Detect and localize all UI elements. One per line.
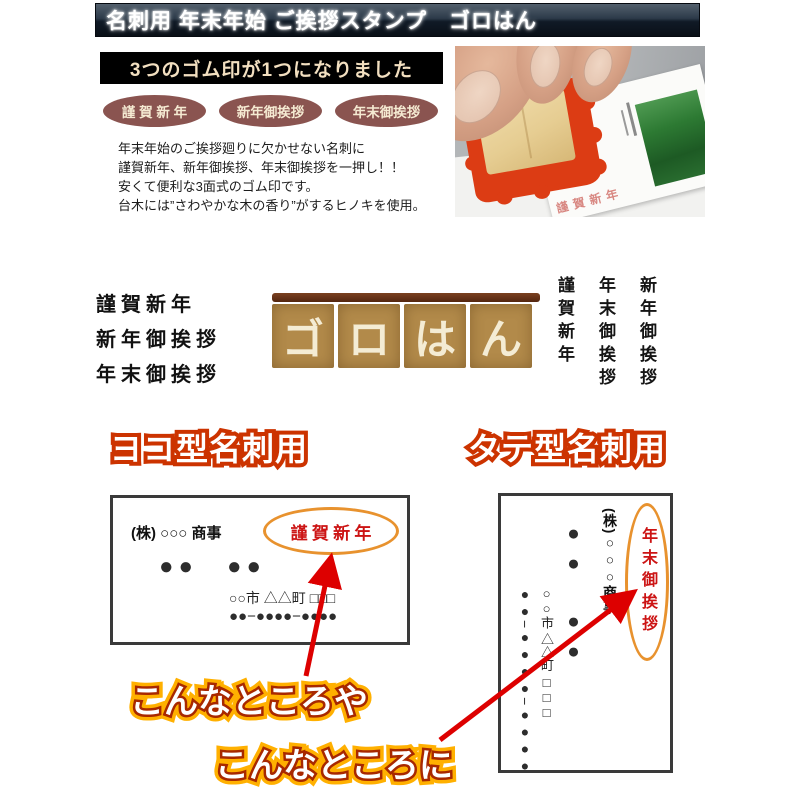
stamp-impressions-horizontal: 謹 賀 新 年 新 年 御 挨 拶 年 末 御 挨 拶 bbox=[96, 288, 216, 393]
impression-column: 新年御挨拶 bbox=[634, 276, 659, 391]
card-company-name: (株) ○○○ 商事 bbox=[131, 522, 222, 543]
badge-label: 年末御挨拶 bbox=[353, 101, 421, 121]
description-line: 安くて便利な3面式のゴム印です。 bbox=[118, 177, 463, 196]
greeting-badges: 謹 賀 新 年 新年御挨拶 年末御挨拶 bbox=[103, 95, 438, 127]
card-person-name-dots: ●● ●● bbox=[558, 522, 588, 670]
impression-line: 新 年 御 挨 拶 bbox=[96, 323, 216, 358]
badge-kinga-shinnen: 謹 賀 新 年 bbox=[103, 95, 206, 127]
heading-text: ヨコ型名刺用 bbox=[110, 424, 308, 470]
stamped-greeting: 謹 賀 新 年 bbox=[291, 519, 372, 544]
note-konna-tokoro-ya: こんなところや こんなところや こんなところや bbox=[130, 674, 368, 723]
badge-label: 謹 賀 新 年 bbox=[122, 101, 187, 121]
intro-banner: 3つのゴム印が1つになりました bbox=[100, 52, 443, 84]
note-text: こんなところに bbox=[215, 738, 453, 787]
goro-han-logo: ゴ ロ は ん bbox=[272, 293, 540, 368]
noren-panel: ロ bbox=[338, 304, 400, 368]
wood-grain bbox=[520, 102, 532, 159]
tate-section-heading: タテ型名刺用 タテ型名刺用 bbox=[468, 424, 666, 470]
tate-business-card: 年末御挨拶 (株)○○○商事 ●● ●● ○○市 △△町 □□□ ●●−●●●●… bbox=[498, 493, 673, 773]
badge-label: 新年御挨拶 bbox=[237, 101, 305, 121]
finger-nail bbox=[579, 46, 618, 91]
finger-nail bbox=[527, 46, 563, 90]
impression-column: 年末御挨拶 bbox=[593, 276, 618, 391]
card-phone-dots: ●●−●●●●−●●●● bbox=[229, 608, 337, 625]
card-person-name-dots: ●● ●● bbox=[159, 546, 266, 581]
note-konna-tokoro-ni: こんなところに こんなところに こんなところに bbox=[215, 738, 453, 787]
highlight-oval: 年末御挨拶 bbox=[625, 503, 669, 661]
logo-char: ロ bbox=[348, 306, 390, 367]
noren-panel: は bbox=[404, 304, 466, 368]
stamped-greeting: 年末御挨拶 bbox=[635, 527, 659, 637]
stamp-impressions-vertical: 謹賀新年 年末御挨拶 新年御挨拶 bbox=[552, 276, 659, 391]
thumb-nail bbox=[455, 60, 511, 133]
note-text: こんなところや bbox=[130, 674, 368, 723]
card-phone-dots: ●●−●●●●−●●●● bbox=[517, 586, 533, 774]
noren-panel: ん bbox=[470, 304, 532, 368]
intro-banner-text: 3つのゴム印が1つになりました bbox=[130, 55, 413, 82]
photo-card-text-line bbox=[621, 110, 629, 136]
product-description: 年末年始のご挨拶廻りに欠かせない名刺に 謹賀新年、新年御挨拶、年末御挨拶を一押し… bbox=[118, 139, 463, 215]
impression-line: 年 末 御 挨 拶 bbox=[96, 358, 216, 393]
noren-panels: ゴ ロ は ん bbox=[272, 304, 540, 368]
photo-card-image bbox=[635, 89, 705, 186]
heading-text: タテ型名刺用 bbox=[468, 424, 666, 470]
description-line: 謹賀新年、新年御挨拶、年末御挨拶を一押し！！ bbox=[118, 158, 463, 177]
badge-shinnen-goaisatsu: 新年御挨拶 bbox=[219, 95, 322, 127]
description-line: 年末年始のご挨拶廻りに欠かせない名刺に bbox=[118, 139, 463, 158]
page-title: 名刺用 年末年始 ご挨拶スタンプ ゴロはん bbox=[106, 5, 537, 35]
noren-panel: ゴ bbox=[272, 304, 334, 368]
product-photo: 謹賀新年 bbox=[455, 46, 705, 217]
impression-column: 謹賀新年 bbox=[552, 276, 577, 391]
card-address: ○○市 △△町 □□□ bbox=[229, 588, 335, 608]
impression-line: 謹 賀 新 年 bbox=[96, 288, 216, 323]
badge-nenmatsu-goaisatsu: 年末御挨拶 bbox=[335, 95, 438, 127]
page-canvas: 名刺用 年末年始 ご挨拶スタンプ ゴロはん 3つのゴム印が1つになりました 謹 … bbox=[0, 0, 800, 800]
noren-rod bbox=[272, 293, 540, 302]
yoko-business-card: (株) ○○○ 商事 謹 賀 新 年 ●● ●● ○○市 △△町 □□□ ●●−… bbox=[110, 495, 410, 645]
highlight-oval: 謹 賀 新 年 bbox=[263, 507, 399, 555]
description-line: 台木には”さわやかな木の香り”がするヒノキを使用。 bbox=[118, 196, 463, 215]
yoko-section-heading: ヨコ型名刺用 ヨコ型名刺用 bbox=[110, 424, 308, 470]
logo-char: ん bbox=[480, 306, 522, 367]
card-company-name: (株)○○○商事 bbox=[600, 508, 620, 615]
logo-char: は bbox=[414, 306, 456, 367]
logo-char: ゴ bbox=[282, 306, 324, 367]
card-address: ○○市 △△町 □□□ bbox=[537, 586, 556, 720]
title-bar: 名刺用 年末年始 ご挨拶スタンプ ゴロはん bbox=[95, 3, 700, 37]
